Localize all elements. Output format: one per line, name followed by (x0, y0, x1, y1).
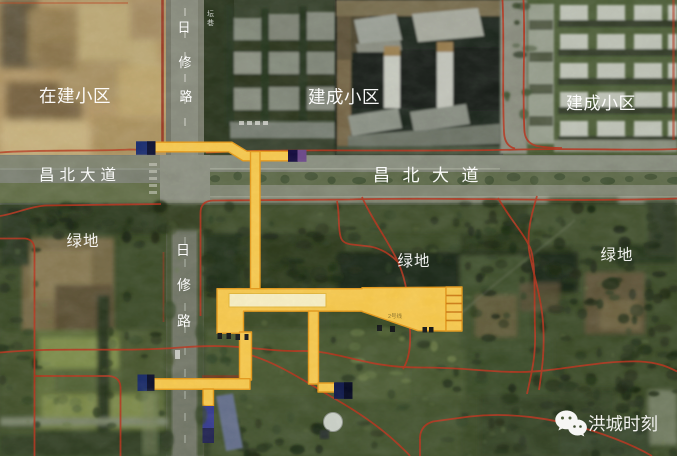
svg-text:绿地: 绿地 (397, 252, 430, 270)
svg-text:绿地: 绿地 (66, 232, 99, 250)
svg-text:巷: 巷 (207, 19, 214, 27)
svg-text:修: 修 (178, 55, 191, 70)
svg-text:坛: 坛 (207, 9, 214, 18)
svg-text:昌北大道: 昌北大道 (39, 166, 121, 184)
svg-text:绿地: 绿地 (600, 246, 633, 264)
svg-text:昌北大道: 昌北大道 (373, 166, 491, 185)
svg-text:日: 日 (177, 20, 190, 35)
svg-text:洪城时刻: 洪城时刻 (588, 414, 658, 434)
svg-text:修: 修 (177, 277, 191, 293)
svg-text:路: 路 (179, 89, 192, 104)
svg-text:日: 日 (176, 242, 190, 258)
svg-text:建成小区: 建成小区 (566, 94, 636, 113)
svg-text:在建小区: 在建小区 (39, 86, 111, 106)
svg-text:建成小区: 建成小区 (308, 87, 380, 107)
svg-text:路: 路 (177, 313, 191, 329)
